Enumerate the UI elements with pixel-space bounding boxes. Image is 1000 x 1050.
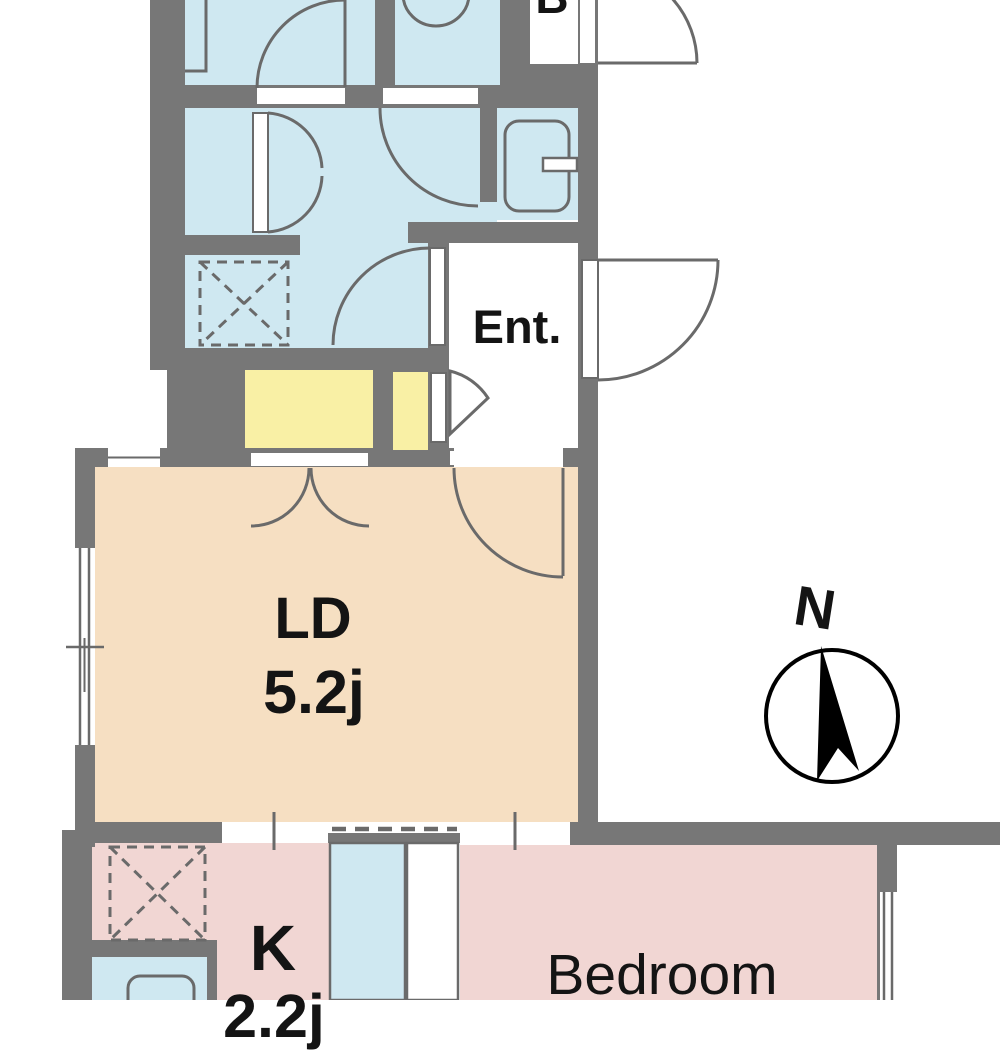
hall-entrance-door-leaf (430, 248, 445, 345)
counter-strips (330, 843, 458, 1000)
hallway-floor-upper (185, 108, 480, 222)
room-label-bedroom: Bedroom (546, 947, 777, 1004)
opening-entrance-ld (450, 451, 563, 465)
kitchen-counter-icon (245, 370, 373, 448)
front-entrance-door-icon (598, 260, 718, 380)
kitchen-counters (245, 370, 428, 450)
room-label-bath: B (535, 0, 568, 20)
kitchen-entrance-door-leaf (431, 373, 446, 442)
opening-top-right-door (580, 0, 595, 63)
window-ld-top-icon (108, 450, 160, 465)
wall-kitchen-band (150, 348, 448, 370)
opening-wc (383, 88, 478, 104)
window-bedroom-east-icon (880, 892, 897, 1000)
wall-ld-top-2 (160, 448, 251, 467)
hallway-floor-elbow (480, 200, 497, 222)
wall-closet-wc (375, 0, 395, 88)
compass-north-label: N (791, 577, 840, 639)
floor-plan-drawing (0, 0, 1000, 1000)
wall-washstand-right (207, 940, 217, 1000)
wall-outer-right (578, 0, 598, 845)
kitchen-sink-counter-icon (330, 843, 405, 1000)
wall-under-sliding (328, 833, 460, 843)
counter-passage-strip (407, 843, 458, 1000)
opening-kitchen-ld (251, 453, 368, 466)
wall-outer-left-bottom (62, 830, 92, 1000)
wall-outer-left-top (150, 0, 185, 370)
opening-closet-room (257, 88, 345, 104)
compass-icon (766, 646, 898, 782)
kitchen-counter-small-icon (393, 372, 428, 450)
top-right-exterior-door-icon (598, 0, 697, 63)
wall-ld-bottom-left (75, 822, 225, 843)
wall-closet2-bottom (150, 235, 300, 255)
wall-bedroom-top (570, 822, 1000, 845)
room-label-entrance: Ent. (473, 303, 562, 350)
entrance-door-gap (582, 260, 598, 378)
room-size-kitchen: 2.2j (223, 986, 325, 1047)
wall-ld-top-3 (368, 448, 454, 467)
closet2-door-leaf (253, 113, 268, 232)
wall-above-entrance (408, 222, 578, 243)
wall-b-stub (523, 64, 578, 88)
wall-washstand-top (92, 940, 217, 957)
wall-ld-top-4 (563, 448, 598, 467)
room-label-ld: LD (274, 590, 351, 648)
room-size-ld: 5.2j (263, 662, 365, 723)
room-label-kitchen: K (250, 916, 296, 980)
wall-bath-left (480, 108, 497, 202)
floor-plan-page: { "plan": { "rooms": { "living_dining": … (0, 0, 1000, 1000)
